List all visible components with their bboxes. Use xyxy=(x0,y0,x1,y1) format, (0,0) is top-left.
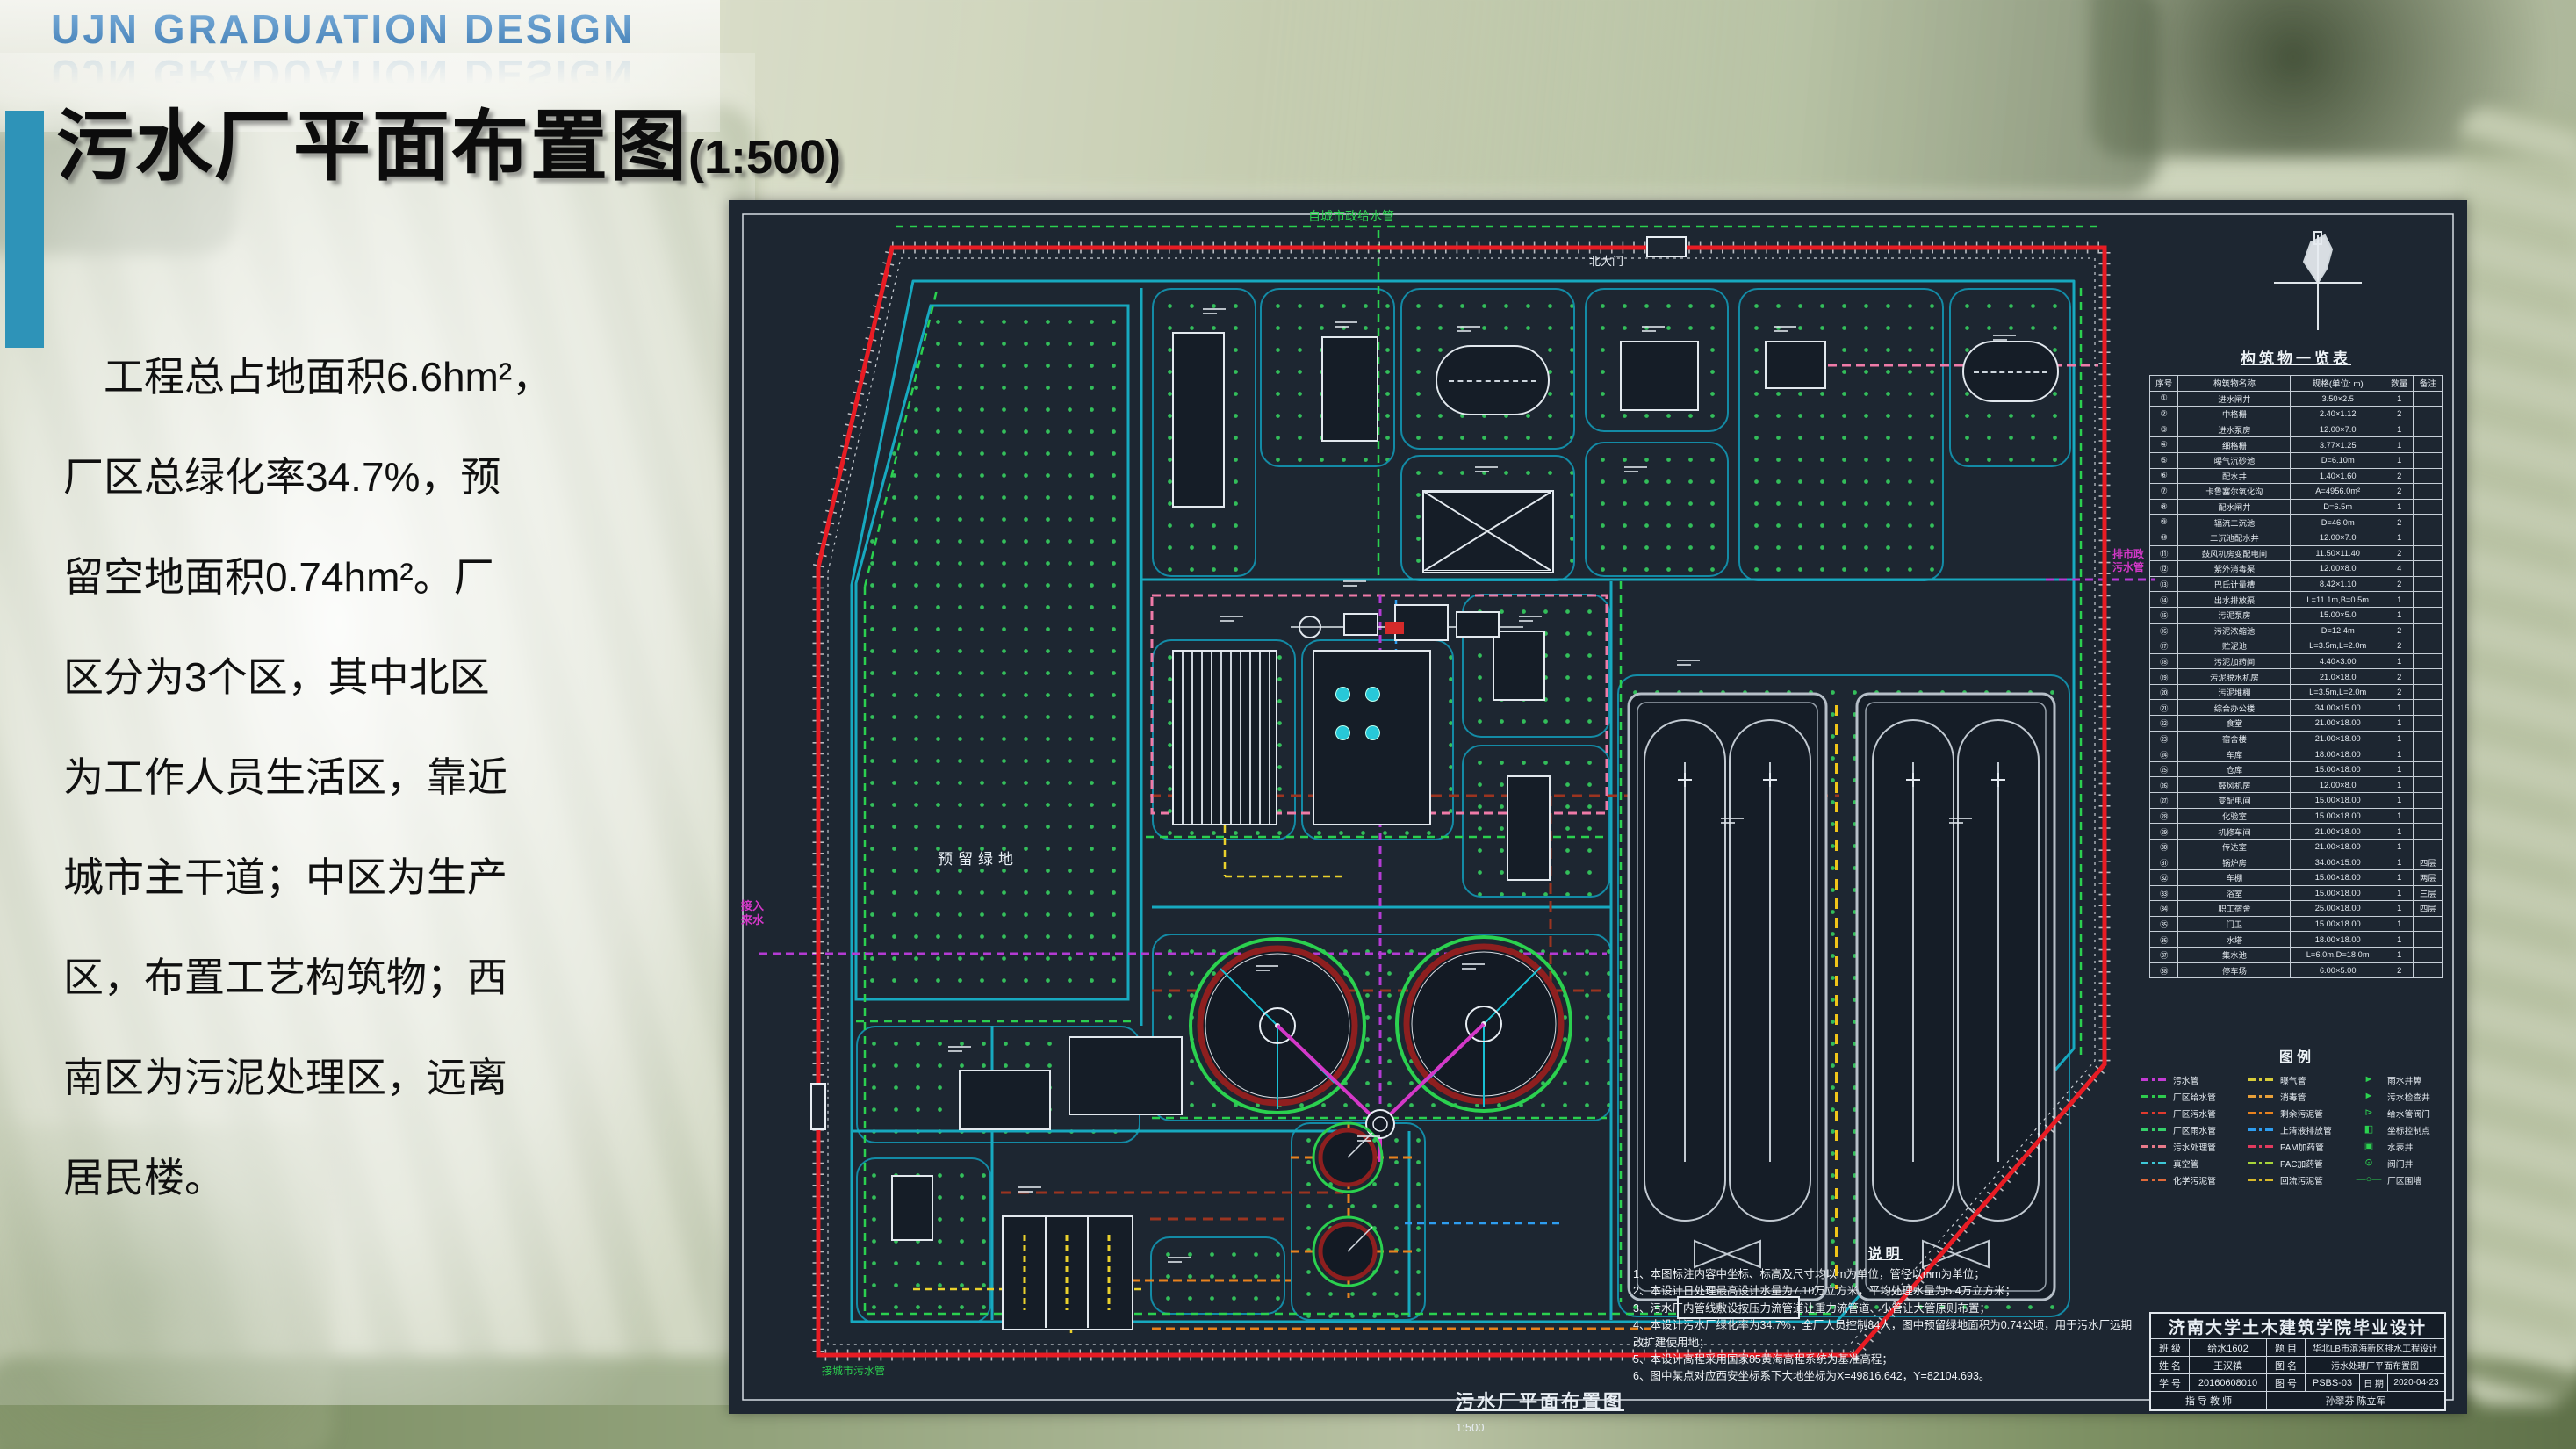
cell-spec: 18.00×18.00 xyxy=(2291,932,2385,948)
cell-note xyxy=(2414,793,2443,809)
notes-panel: 说明 1、本图标注内容中坐标、标高及尺寸均以m为单位，管径以mm为单位；2、本设… xyxy=(1633,1242,2138,1386)
tiny-label-mark xyxy=(1993,332,2016,343)
cell-note: 四层 xyxy=(2414,854,2443,870)
page-title-text: 污水厂平面布置图 xyxy=(56,103,688,190)
cell-no: ③ xyxy=(2150,422,2178,437)
cell-name: 紫外消毒渠 xyxy=(2178,561,2291,577)
cell-spec: 15.00×5.0 xyxy=(2291,607,2385,623)
cell-spec: 21.0×18.0 xyxy=(2291,669,2385,685)
legend-item: 厂区污水管 xyxy=(2141,1105,2239,1121)
table-row: ㉙ 机修车间 21.00×18.00 1 xyxy=(2150,824,2443,840)
tiny-label-mark xyxy=(1519,613,1542,624)
cell-qty: 1 xyxy=(2385,391,2414,407)
table-row: ⑥ 配水井 1.40×1.60 2 xyxy=(2150,468,2443,484)
cell-no: ⑩ xyxy=(2150,530,2178,545)
legend-label: 阀门井 xyxy=(2387,1157,2413,1170)
building-lab xyxy=(1765,341,1826,389)
reserved-green-label: 预留绿地 xyxy=(938,850,1018,869)
student-id-value: 20160608010 xyxy=(2190,1374,2267,1391)
legend-line-swatch xyxy=(2141,1078,2169,1081)
cell-spec: 1.40×1.60 xyxy=(2291,468,2385,484)
cell-note: 三层 xyxy=(2414,885,2443,901)
cell-note xyxy=(2414,839,2443,854)
legend-label: 化学污泥管 xyxy=(2173,1174,2216,1186)
tiny-label-mark xyxy=(1949,815,1972,826)
cell-spec: 15.00×18.00 xyxy=(2291,793,2385,809)
legend-symbol-icon: ► xyxy=(2355,1092,2383,1101)
cell-qty: 1 xyxy=(2385,716,2414,732)
cell-no: ⑪ xyxy=(2150,545,2178,561)
table-row: ㉞ 职工宿舍 25.00×18.00 1 四层 xyxy=(2150,901,2443,917)
cell-name: 传达室 xyxy=(2178,839,2291,854)
legend-item: 消毒管 xyxy=(2248,1088,2346,1105)
cell-qty: 1 xyxy=(2385,530,2414,545)
cell-no: ⑬ xyxy=(2150,576,2178,592)
legend-label: 厂区给水管 xyxy=(2173,1091,2216,1103)
cell-name: 出水排放渠 xyxy=(2178,592,2291,608)
legend-symbol-icon: ◧ xyxy=(2355,1125,2383,1135)
legend-label: 污水处理管 xyxy=(2173,1141,2216,1153)
cell-name: 停车场 xyxy=(2178,962,2291,978)
cell-no: ㉔ xyxy=(2150,746,2178,762)
cell-spec: 12.00×8.0 xyxy=(2291,561,2385,577)
building-garage xyxy=(1620,341,1699,411)
paragraph-line: 为工作人员生活区，靠近 xyxy=(63,727,643,827)
table-row: ㉜ 车棚 15.00×18.00 1 两层 xyxy=(2150,870,2443,886)
north-arrow-icon xyxy=(2274,232,2362,330)
blower-circle xyxy=(1365,725,1380,740)
legend-label: 消毒管 xyxy=(2280,1091,2306,1103)
cell-name: 污泥加药间 xyxy=(2178,653,2291,669)
legend-panel: 图例 污水管厂区给水管厂区污水管厂区雨水管污水处理管真空管化学污泥管 曝气管消毒… xyxy=(2141,1045,2453,1188)
table-row: ⑪ 鼓风机房变配电间 11.50×11.40 2 xyxy=(2150,545,2443,561)
legend-line-swatch xyxy=(2248,1128,2276,1131)
cell-qty: 1 xyxy=(2385,437,2414,453)
table-row: ㉕ 仓库 15.00×18.00 1 xyxy=(2150,761,2443,777)
cell-note xyxy=(2414,561,2443,577)
cell-spec: D=46.0m xyxy=(2291,515,2385,530)
legend-item: 回流污泥管 xyxy=(2248,1171,2346,1188)
bg-field-top xyxy=(667,0,2160,193)
blower-circle xyxy=(1365,687,1380,702)
legend-item: —○—厂区围墙 xyxy=(2355,1171,2453,1188)
legend-item: PAC加药管 xyxy=(2248,1155,2346,1171)
legend-item: ▣水表井 xyxy=(2355,1138,2453,1155)
cell-no: ㉖ xyxy=(2150,777,2178,793)
drawing-name-label: 图 名 xyxy=(2267,1357,2306,1373)
dewatering-internals xyxy=(1004,1217,1131,1328)
legend-symbol-icon: —○— xyxy=(2355,1175,2383,1185)
cell-qty: 1 xyxy=(2385,746,2414,762)
aeration-tank-1 xyxy=(1172,650,1277,825)
legend-label: 上清液排放管 xyxy=(2280,1124,2332,1136)
drawing-bottom-scale: 1:500 xyxy=(1456,1421,1485,1434)
description-paragraph: 工程总占地面积6.6hm²，厂区总绿化率34.7%，预留空地面积0.74hm²。… xyxy=(63,327,643,1228)
table-row: ㉒ 食堂 21.00×18.00 1 xyxy=(2150,716,2443,732)
note-item: 1、本图标注内容中坐标、标高及尺寸均以m为单位，管径以mm为单位； xyxy=(1633,1266,2138,1283)
table-row: ⑰ 贮泥池 L=3.5m,L=2.0m 2 xyxy=(2150,638,2443,654)
legend-item: ◧坐标控制点 xyxy=(2355,1121,2453,1138)
drawing-no-value: PSBS-03 xyxy=(2306,1374,2360,1391)
building-blower-south xyxy=(1069,1036,1183,1115)
legend-item: 污水处理管 xyxy=(2141,1138,2239,1155)
cell-spec: D=6.10m xyxy=(2291,452,2385,468)
building-substation xyxy=(1493,631,1545,701)
cell-spec: L=11.1m,B=0.5m xyxy=(2291,592,2385,608)
cell-qty: 1 xyxy=(2385,901,2414,917)
cell-spec: 3.50×2.5 xyxy=(2291,391,2385,407)
cell-qty: 1 xyxy=(2385,452,2414,468)
structures-table-header-cell: 数量 xyxy=(2385,376,2414,392)
cell-no: ㉕ xyxy=(2150,761,2178,777)
paragraph-line: 居民楼。 xyxy=(63,1128,643,1228)
subject-value: 华北LB市滨海新区排水工程设计 xyxy=(2306,1339,2444,1356)
legend-label: 厂区污水管 xyxy=(2173,1107,2216,1120)
cell-name: 卡鲁塞尔氧化沟 xyxy=(2178,484,2291,500)
cell-spec: 15.00×18.00 xyxy=(2291,870,2385,886)
cell-name: 集水池 xyxy=(2178,947,2291,962)
legend-line-swatch xyxy=(2141,1095,2169,1098)
table-row: ⑳ 污泥堆棚 L=3.5m,L=2.0m 2 xyxy=(2150,684,2443,700)
cell-no: ⑮ xyxy=(2150,607,2178,623)
legend-label: 真空管 xyxy=(2173,1157,2198,1170)
cell-no: ㉓ xyxy=(2150,731,2178,746)
legend-label: 厂区雨水管 xyxy=(2173,1124,2216,1136)
cell-note xyxy=(2414,700,2443,716)
cell-no: ② xyxy=(2150,407,2178,422)
date-label: 日 期 xyxy=(2360,1374,2388,1391)
grit-chamber-oval xyxy=(1436,345,1550,415)
structures-table-header-cell: 序号 xyxy=(2150,376,2178,392)
legend-label: 污水管 xyxy=(2173,1074,2198,1086)
cell-name: 污泥浓缩池 xyxy=(2178,623,2291,638)
legend-label: 曝气管 xyxy=(2280,1074,2306,1086)
cell-no: ⑧ xyxy=(2150,499,2178,515)
cell-spec: 34.00×15.00 xyxy=(2291,700,2385,716)
legend-symbol-icon: ⊳ xyxy=(2355,1108,2383,1118)
note-item: 6、图中某点对应西安坐标系下大地坐标为X=49816.642，Y=82104.6… xyxy=(1633,1368,2138,1385)
table-row: ㉝ 浴室 15.00×18.00 1 三层 xyxy=(2150,885,2443,901)
class-label: 班 级 xyxy=(2151,1339,2190,1356)
cell-no: ⑫ xyxy=(2150,561,2178,577)
cell-note xyxy=(2414,515,2443,530)
title-block: 济南大学土木建筑学院毕业设计 班 级 给水1602 题 目 华北LB市滨海新区排… xyxy=(2149,1312,2446,1411)
legend-item: 真空管 xyxy=(2141,1155,2239,1171)
legend-item: 化学污泥管 xyxy=(2141,1171,2239,1188)
cell-name: 宿舍楼 xyxy=(2178,731,2291,746)
city-water-pipe-label: 自城市政给水管 xyxy=(1308,209,1394,225)
cell-note xyxy=(2414,746,2443,762)
building-office xyxy=(1321,336,1378,442)
legend-title: 图例 xyxy=(2141,1045,2453,1066)
cell-name: 曝气沉砂池 xyxy=(2178,452,2291,468)
cell-no: ④ xyxy=(2150,437,2178,453)
cell-spec: 12.00×8.0 xyxy=(2291,777,2385,793)
table-row: ③ 进水泵房 12.00×7.0 1 xyxy=(2150,422,2443,437)
cell-note xyxy=(2414,391,2443,407)
legend-label: PAC加药管 xyxy=(2280,1157,2323,1170)
subject-label: 题 目 xyxy=(2267,1339,2306,1356)
date-value: 2020-04-23 xyxy=(2388,1374,2444,1391)
oxidation-ditch-basins xyxy=(1629,694,2054,1300)
page-title-scale: (1:500) xyxy=(688,131,841,184)
legend-label: 回流污泥管 xyxy=(2280,1174,2323,1186)
legend-line-swatch xyxy=(2248,1078,2276,1081)
cell-spec: 15.00×18.00 xyxy=(2291,885,2385,901)
cell-name: 仓库 xyxy=(2178,761,2291,777)
cell-note xyxy=(2414,407,2443,422)
cell-note xyxy=(2414,468,2443,484)
tiny-label-mark xyxy=(1335,319,1357,330)
cell-note xyxy=(2414,623,2443,638)
cell-qty: 1 xyxy=(2385,731,2414,746)
cell-qty: 1 xyxy=(2385,824,2414,840)
equip-screen-3 xyxy=(1456,611,1500,638)
legend-col-1: 污水管厂区给水管厂区污水管厂区雨水管污水处理管真空管化学污泥管 xyxy=(2141,1071,2239,1188)
table-row: ㉘ 化验室 15.00×18.00 1 xyxy=(2150,808,2443,824)
legend-label: 剩余污泥管 xyxy=(2280,1107,2323,1120)
tiny-label-mark xyxy=(1018,1184,1041,1195)
paragraph-line: 城市主干道；中区为生产 xyxy=(63,827,643,927)
cell-spec: 21.00×18.00 xyxy=(2291,716,2385,732)
note-item: 3、污水厂内管线敷设按压力流管道让重力流管道、小管让大管原则布置； xyxy=(1633,1301,2138,1317)
presentation-slide: UJN GRADUATION DESIGN UJN GRADUATION DES… xyxy=(0,0,2576,1449)
cell-spec: 3.77×1.25 xyxy=(2291,437,2385,453)
building-canteen-hip-roof xyxy=(1422,490,1554,573)
table-row: ② 中格栅 2.40×1.12 2 xyxy=(2150,407,2443,422)
cad-drawing-sheet: 预留绿地 北大门 接入 来水 排市政 污水管 自城市政给水管 接城市污水管 污水… xyxy=(729,200,2467,1414)
cell-name: 变配电间 xyxy=(2178,793,2291,809)
table-row: ① 进水闸井 3.50×2.5 1 xyxy=(2150,391,2443,407)
cell-qty: 2 xyxy=(2385,515,2414,530)
aeration-tank-2-blowers xyxy=(1313,650,1431,825)
cell-qty: 1 xyxy=(2385,700,2414,716)
legend-line-swatch xyxy=(2248,1112,2276,1114)
notes-title: 说明 xyxy=(1633,1242,2138,1263)
cell-spec: 12.00×7.0 xyxy=(2291,422,2385,437)
paragraph-line: 留空地面积0.74hm²。厂 xyxy=(63,527,643,627)
tiny-label-mark xyxy=(1774,323,1796,335)
cell-note xyxy=(2414,530,2443,545)
oval-structure-ne xyxy=(1962,341,2059,402)
legend-symbol-icon: ⊙ xyxy=(2355,1158,2383,1168)
cell-note xyxy=(2414,638,2443,654)
legend-item: PAM加药管 xyxy=(2248,1138,2346,1155)
cell-spec: 6.00×5.00 xyxy=(2291,962,2385,978)
cell-note xyxy=(2414,684,2443,700)
cell-qty: 1 xyxy=(2385,870,2414,886)
tiny-label-mark xyxy=(948,1043,971,1055)
cell-name: 污泥泵房 xyxy=(2178,607,2291,623)
inflow-label: 接入 来水 xyxy=(741,899,764,928)
cell-qty: 2 xyxy=(2385,623,2414,638)
building-dosing xyxy=(891,1175,933,1241)
cell-qty: 1 xyxy=(2385,947,2414,962)
cell-qty: 1 xyxy=(2385,793,2414,809)
table-row: ㉔ 车库 18.00×18.00 1 xyxy=(2150,746,2443,762)
cell-qty: 1 xyxy=(2385,499,2414,515)
cell-no: ㉗ xyxy=(2150,793,2178,809)
cell-name: 中格栅 xyxy=(2178,407,2291,422)
oval-centerline xyxy=(1449,380,1537,382)
table-row: ⑮ 污泥泵房 15.00×5.0 1 xyxy=(2150,607,2443,623)
cell-note xyxy=(2414,916,2443,932)
cell-no: ⑨ xyxy=(2150,515,2178,530)
cell-note xyxy=(2414,545,2443,561)
table-row: ⑦ 卡鲁塞尔氧化沟 A=4956.0m² 2 xyxy=(2150,484,2443,500)
table-row: ㉑ 综合办公楼 34.00×15.00 1 xyxy=(2150,700,2443,716)
cell-qty: 1 xyxy=(2385,592,2414,608)
cell-note xyxy=(2414,731,2443,746)
table-row: ⑱ 污泥加药间 4.40×3.00 1 xyxy=(2150,653,2443,669)
cell-name: 机修车间 xyxy=(2178,824,2291,840)
cell-no: ⑦ xyxy=(2150,484,2178,500)
cell-name: 配水闸井 xyxy=(2178,499,2291,515)
structures-table-header-cell: 规格(单位: m) xyxy=(2291,376,2385,392)
tiny-label-mark xyxy=(1462,961,1485,972)
bg-field-right xyxy=(2458,105,2576,1405)
cell-spec: 15.00×18.00 xyxy=(2291,761,2385,777)
tiny-label-mark xyxy=(1475,464,1498,475)
cell-note xyxy=(2414,808,2443,824)
page-title: 污水厂平面布置图(1:500) xyxy=(56,84,841,196)
table-row: ㉛ 锅炉房 34.00×15.00 1 四层 xyxy=(2150,854,2443,870)
paragraph-line: 工程总占地面积6.6hm²， xyxy=(63,327,643,427)
structures-table-header-cell: 备注 xyxy=(2414,376,2443,392)
cell-no: ㉝ xyxy=(2150,885,2178,901)
legend-line-swatch xyxy=(2141,1145,2169,1148)
building-dewatering xyxy=(1002,1215,1133,1330)
cell-spec: 15.00×18.00 xyxy=(2291,808,2385,824)
cell-note xyxy=(2414,422,2443,437)
legend-label: PAM加药管 xyxy=(2280,1141,2324,1153)
cell-qty: 2 xyxy=(2385,407,2414,422)
cell-note xyxy=(2414,653,2443,669)
table-row: ⑲ 污泥脱水机房 21.0×18.0 2 xyxy=(2150,669,2443,685)
cell-name: 门卫 xyxy=(2178,916,2291,932)
cell-no: ㉜ xyxy=(2150,870,2178,886)
cell-name: 进水闸井 xyxy=(2178,391,2291,407)
cell-no: ㊳ xyxy=(2150,962,2178,978)
legend-item: ►污水检查井 xyxy=(2355,1088,2453,1105)
cell-spec: L=3.5m,L=2.0m xyxy=(2291,638,2385,654)
table-row: ④ 细格栅 3.77×1.25 1 xyxy=(2150,437,2443,453)
legend-col-2: 曝气管消毒管剩余污泥管上清液排放管PAM加药管PAC加药管回流污泥管 xyxy=(2248,1071,2346,1188)
cell-no: ⑰ xyxy=(2150,638,2178,654)
table-row: ⑨ 辐流二沉池 D=46.0m 2 xyxy=(2150,515,2443,530)
tiny-label-mark xyxy=(1677,657,1700,668)
structures-table-body: ① 进水闸井 3.50×2.5 1 ② 中格栅 2.40×1.12 2 xyxy=(2150,391,2443,978)
cell-qty: 1 xyxy=(2385,761,2414,777)
city-sewer-pipe-label: 接城市污水管 xyxy=(822,1365,885,1378)
paragraph-line: 区分为3个区，其中北区 xyxy=(63,627,643,727)
cell-no: ㉙ xyxy=(2150,824,2178,840)
cell-qty: 1 xyxy=(2385,916,2414,932)
note-item: 4、本设计污水厂绿化率为34.7%，全厂人员控制84人，图中预留绿地面积为0.7… xyxy=(1633,1317,2138,1352)
cell-qty: 4 xyxy=(2385,561,2414,577)
cell-qty: 2 xyxy=(2385,669,2414,685)
legend-line-swatch xyxy=(2248,1095,2276,1098)
legend-line-swatch xyxy=(2248,1145,2276,1148)
legend-item: ⊙阀门井 xyxy=(2355,1155,2453,1171)
paragraph-line: 区，布置工艺构筑物；西 xyxy=(63,927,643,1027)
table-row: ㉓ 宿舍楼 21.00×18.00 1 xyxy=(2150,731,2443,746)
tiny-label-mark xyxy=(1256,962,1278,974)
table-row: ㊳ 停车场 6.00×5.00 2 xyxy=(2150,962,2443,978)
cell-spec: 21.00×18.00 xyxy=(2291,731,2385,746)
cell-note xyxy=(2414,484,2443,500)
tiny-label-mark xyxy=(1457,323,1480,335)
cell-note xyxy=(2414,669,2443,685)
oval-centerline xyxy=(1974,371,2048,373)
cell-qty: 1 xyxy=(2385,422,2414,437)
slide-header: UJN GRADUATION DESIGN xyxy=(51,5,635,53)
cell-qty: 2 xyxy=(2385,684,2414,700)
cell-spec: 21.00×18.00 xyxy=(2291,839,2385,854)
advisor-label: 指 导 教 师 xyxy=(2151,1392,2267,1409)
title-accent-bar xyxy=(5,111,44,348)
cell-name: 鼓风机房变配电间 xyxy=(2178,545,2291,561)
table-row: ⑤ 曝气沉砂池 D=6.10m 1 xyxy=(2150,452,2443,468)
outfall-label: 排市政 污水管 xyxy=(2112,548,2144,574)
cell-spec: 25.00×18.00 xyxy=(2291,901,2385,917)
legend-line-swatch xyxy=(2141,1162,2169,1164)
cell-name: 水塔 xyxy=(2178,932,2291,948)
structures-table-header-row: 序号构筑物名称规格(单位: m)数量备注 xyxy=(2150,376,2443,392)
cell-no: ㉛ xyxy=(2150,854,2178,870)
name-label: 姓 名 xyxy=(2151,1357,2190,1373)
cell-qty: 1 xyxy=(2385,854,2414,870)
cell-spec: 2.40×1.12 xyxy=(2291,407,2385,422)
cell-spec: 8.42×1.10 xyxy=(2291,576,2385,592)
cell-spec: 4.40×3.00 xyxy=(2291,653,2385,669)
cell-name: 浴室 xyxy=(2178,885,2291,901)
table-row: ⑭ 出水排放渠 L=11.1m,B=0.5m 1 xyxy=(2150,592,2443,608)
legend-item: 污水管 xyxy=(2141,1071,2239,1088)
legend-line-swatch xyxy=(2141,1179,2169,1181)
drawing-name-value: 污水处理厂平面布置图 xyxy=(2306,1357,2444,1373)
legend-symbol-icon: ▣ xyxy=(2355,1142,2383,1151)
cell-name: 巴氏计量槽 xyxy=(2178,576,2291,592)
cell-spec: 18.00×18.00 xyxy=(2291,746,2385,762)
cell-spec: D=12.4m xyxy=(2291,623,2385,638)
cell-spec: 12.00×7.0 xyxy=(2291,530,2385,545)
cell-name: 辐流二沉池 xyxy=(2178,515,2291,530)
cell-no: ① xyxy=(2150,391,2178,407)
cell-spec: L=3.5m,L=2.0m xyxy=(2291,684,2385,700)
blower-circle xyxy=(1335,687,1350,702)
cell-spec: D=6.5m xyxy=(2291,499,2385,515)
cell-name: 综合办公楼 xyxy=(2178,700,2291,716)
equip-screen-1 xyxy=(1343,613,1378,636)
cell-name: 车库 xyxy=(2178,746,2291,762)
cell-name: 进水泵房 xyxy=(2178,422,2291,437)
tiny-label-mark xyxy=(1642,323,1665,335)
cell-note xyxy=(2414,932,2443,948)
table-row: ⑫ 紫外消毒渠 12.00×8.0 4 xyxy=(2150,561,2443,577)
table-row: ⑧ 配水闸井 D=6.5m 1 xyxy=(2150,499,2443,515)
notes-list: 1、本图标注内容中坐标、标高及尺寸均以m为单位，管径以mm为单位；2、本设计日处… xyxy=(1633,1266,2138,1386)
cell-name: 车棚 xyxy=(2178,870,2291,886)
cell-note: 四层 xyxy=(2414,901,2443,917)
cell-no: ⑱ xyxy=(2150,653,2178,669)
cell-note xyxy=(2414,437,2443,453)
cell-spec: L=6.0m,D=18.0m xyxy=(2291,947,2385,962)
north-gate-label: 北大门 xyxy=(1589,255,1623,269)
table-row: ㉚ 传达室 21.00×18.00 1 xyxy=(2150,839,2443,854)
tiny-label-mark xyxy=(1357,1133,1380,1144)
paragraph-line: 南区为污泥处理区，远离 xyxy=(63,1027,643,1128)
